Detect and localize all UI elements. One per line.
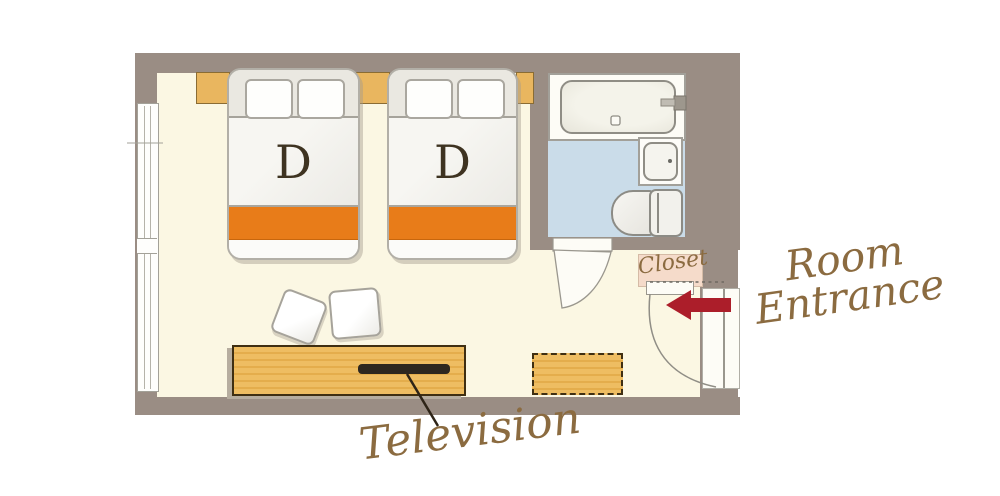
stool-icon — [328, 287, 382, 340]
sink-icon — [638, 137, 683, 186]
bed-runner-stripe — [389, 205, 516, 240]
bed-head — [389, 70, 516, 118]
bathtub-icon — [560, 80, 676, 134]
bathroom-wall-bottom — [530, 237, 685, 250]
bed-foot — [229, 240, 358, 258]
bed-runner-stripe — [229, 205, 358, 240]
closet-door — [646, 281, 694, 295]
television-icon — [358, 364, 450, 374]
headboard-wood — [196, 72, 230, 104]
luggage-bench — [532, 353, 623, 395]
bed-size-label: D — [434, 135, 471, 189]
wall-right-upper — [685, 53, 740, 250]
bed-size-label: D — [275, 135, 312, 189]
bed-mattress: D — [389, 118, 516, 205]
window-icon — [137, 103, 159, 392]
room-entrance-label: Room Entrance — [738, 225, 957, 331]
pillow-icon — [297, 79, 345, 119]
sink-basin — [643, 142, 678, 181]
toilet-tank-icon — [649, 189, 683, 237]
bed-mattress: D — [229, 118, 358, 205]
entrance-door-leaf-line — [723, 289, 725, 388]
tv-console — [232, 345, 466, 396]
bed-foot — [389, 240, 516, 258]
toilet-tank-line — [657, 193, 659, 233]
window-divider — [137, 238, 157, 254]
headboard-wood — [516, 72, 534, 104]
pillow-icon — [405, 79, 453, 119]
pillow-icon — [245, 79, 293, 119]
double-bed-1: D — [227, 68, 360, 260]
bed-head — [229, 70, 358, 118]
sink-faucet-dot — [668, 159, 672, 163]
double-bed-2: D — [387, 68, 518, 260]
bathtub-deck — [548, 73, 686, 141]
pillow-icon — [457, 79, 505, 119]
entrance-door — [702, 288, 740, 389]
floor-plan: D D — [0, 0, 1000, 496]
headboard-wood — [355, 72, 390, 104]
